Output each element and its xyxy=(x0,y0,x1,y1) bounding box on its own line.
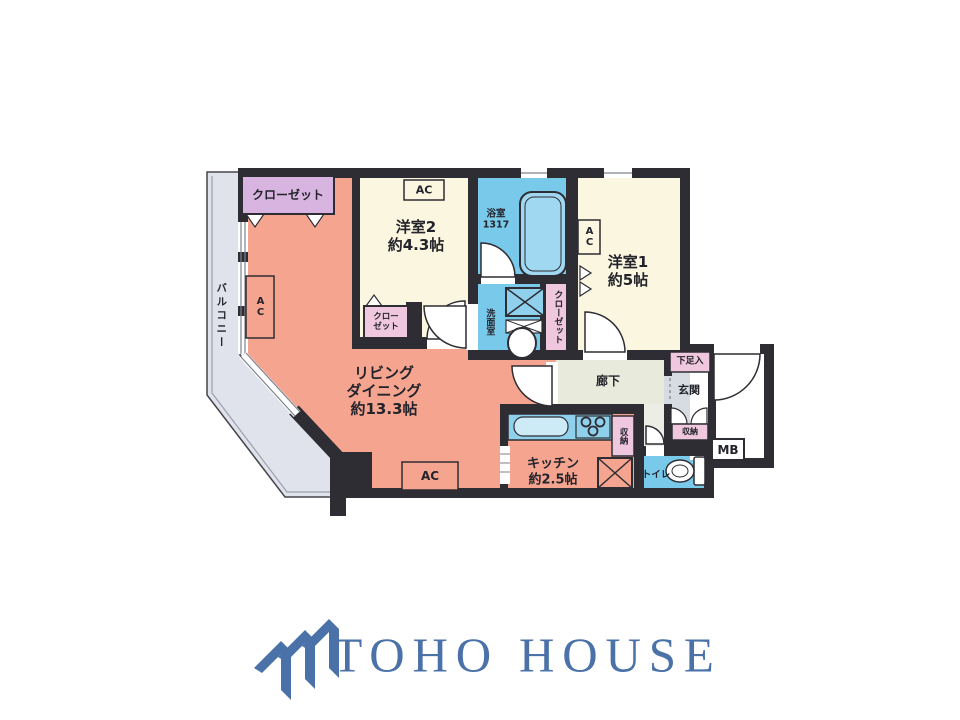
label-closet1: クローゼット xyxy=(552,290,563,344)
label-bath: 浴室 1317 xyxy=(483,209,509,232)
label-ac-room1: AC xyxy=(583,226,595,248)
label-mb: MB xyxy=(717,443,738,457)
label-shoe-cabinet: 下足入 xyxy=(676,357,703,368)
label-closet-small: クロー ゼット xyxy=(373,312,399,332)
label-ac-living-bottom: AC xyxy=(421,469,439,483)
label-storage-genkan: 収納 xyxy=(682,427,698,437)
toilet-tank xyxy=(694,457,705,485)
label-balcony: バルコニー xyxy=(215,282,228,350)
label-ac-living-left: AC xyxy=(254,296,266,318)
label-entrance: 玄関 xyxy=(678,383,700,396)
label-living-dining: リビング ダイニング 約13.3帖 xyxy=(346,364,421,418)
label-ac-room2: AC xyxy=(416,183,433,196)
label-hallway: 廊下 xyxy=(596,374,620,388)
triple-roof-chevron-icon xyxy=(254,619,339,700)
floorplan-drawing xyxy=(0,0,960,720)
label-closet-top: クローゼット xyxy=(252,188,324,202)
label-washroom: 洗面室 xyxy=(484,309,495,336)
floorplan-page: クローゼット AC 洋室2 約4.3帖 浴室 1317 AC 洋室1 約5帖 バ… xyxy=(0,0,960,720)
logo-text: TOHO HOUSE xyxy=(332,627,721,684)
label-storage-kitchen: 収納 xyxy=(618,428,628,445)
label-toilet: トイレ xyxy=(642,469,671,480)
label-room2: 洋室2 約4.3帖 xyxy=(388,218,445,254)
kitchen-sink xyxy=(514,417,568,436)
label-room1: 洋室1 約5帖 xyxy=(608,253,648,289)
bathtub xyxy=(520,192,566,276)
wash-basin xyxy=(508,328,536,358)
label-kitchen: キッチン 約2.5帖 xyxy=(527,456,579,487)
